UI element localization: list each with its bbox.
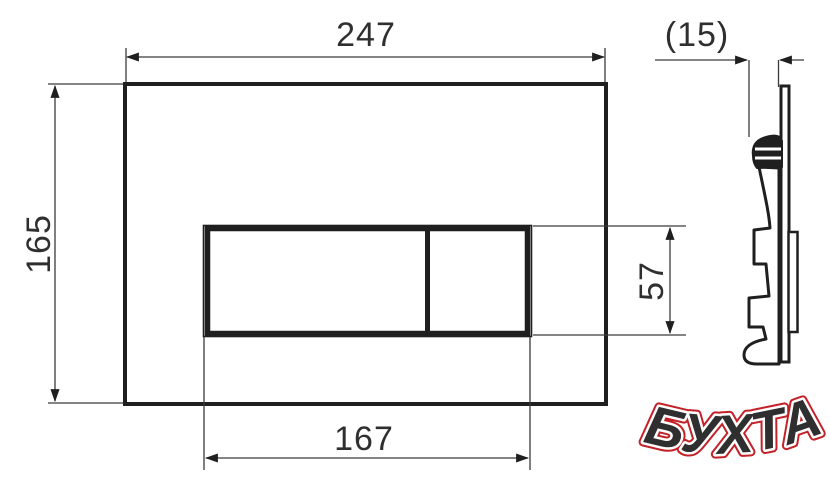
button-frame-outer-line xyxy=(204,226,532,337)
dimension-label-plate-width: 247 xyxy=(336,16,396,54)
button-edge-profile xyxy=(789,232,798,332)
dimension-plate-height: 165 xyxy=(20,84,123,403)
drawing-svg: 247 165 167 57 (15) xyxy=(0,0,829,484)
dimension-label-plate-thickness: (15) xyxy=(665,16,729,54)
dimension-label-button-width: 167 xyxy=(334,420,394,458)
mounting-clip-profile xyxy=(744,167,779,364)
side-view xyxy=(744,86,798,364)
front-view xyxy=(125,84,606,404)
spring-clip-head xyxy=(753,136,782,168)
technical-drawing-canvas: 247 165 167 57 (15) xyxy=(0,0,829,484)
logo-text-layer: БУХТА xyxy=(639,385,829,467)
dimension-label-plate-height: 165 xyxy=(20,214,58,274)
dimension-label-button-height: 57 xyxy=(633,261,671,301)
logo-red-fill: БУХТА xyxy=(639,385,829,467)
watermark-logo: БУХТА БУХТА БУХТА xyxy=(639,385,829,467)
dimension-plate-width: 247 xyxy=(126,16,605,82)
